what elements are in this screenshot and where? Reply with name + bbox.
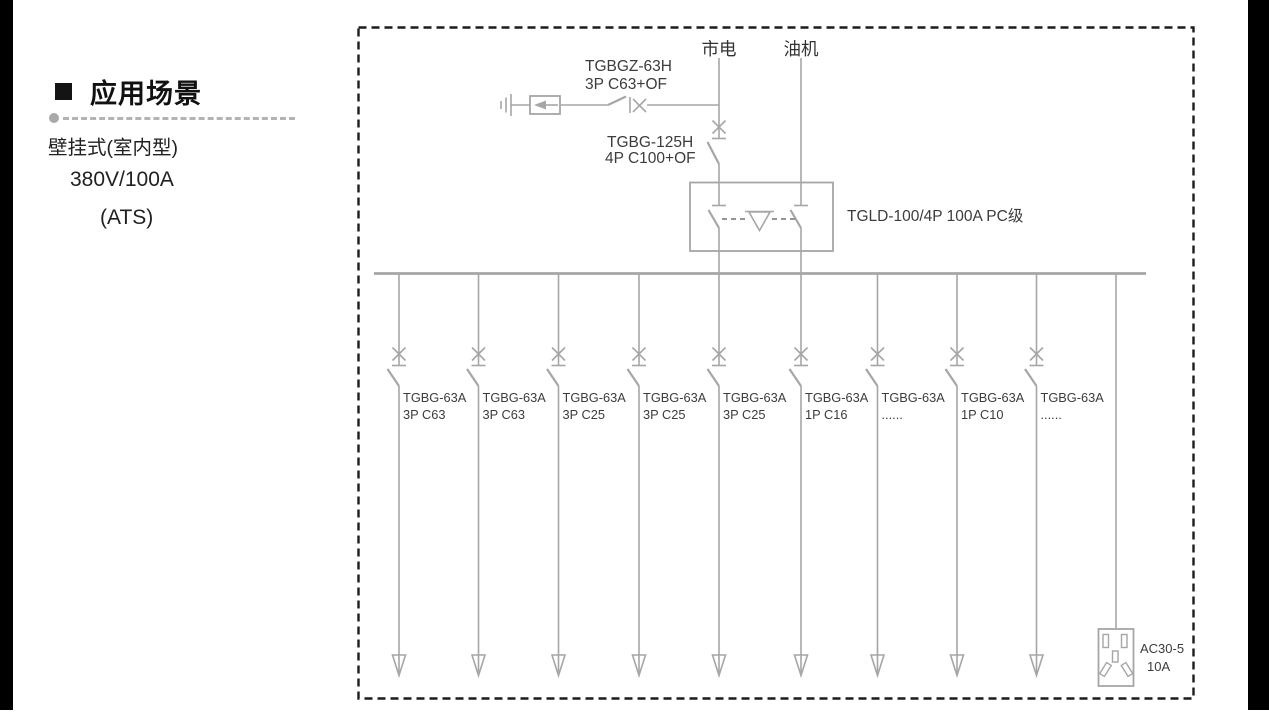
- feeder-branch: TGBG-63A 3P C25: [708, 274, 787, 676]
- breaker-blade-icon: [608, 97, 626, 106]
- breaker-blade-icon: [790, 369, 802, 386]
- main-breaker-model: TGBG-125H: [607, 134, 693, 151]
- single-line-diagram: 市电 油机 TGBGZ-63H 3P C63+OF TGBG-125H 4P C…: [0, 0, 1269, 721]
- branch-spec: 3P C25: [563, 407, 605, 422]
- breaker-x-icon: [633, 99, 646, 112]
- feeder-branch: TGBG-63A 3P C25: [628, 274, 707, 676]
- breaker-blade-icon: [628, 369, 640, 386]
- feeder-branch: TGBG-63A 3P C25: [547, 274, 626, 676]
- branch-model: TGBG-63A: [483, 390, 547, 405]
- socket-branch: [1099, 274, 1134, 686]
- socket-slot: [1113, 651, 1119, 662]
- branch-spec: 3P C25: [643, 407, 685, 422]
- branch-model: TGBG-63A: [805, 390, 869, 405]
- diagram-dashed-border: [359, 28, 1194, 699]
- branch-model: TGBG-63A: [961, 390, 1025, 405]
- generator-source-label: 油机: [784, 39, 819, 59]
- earth-ground-icon: [501, 94, 511, 116]
- branch-spec: 3P C63: [483, 407, 525, 422]
- branch-model: TGBG-63A: [563, 390, 627, 405]
- branch-model: TGBG-63A: [723, 390, 787, 405]
- branch-spec: ......: [1041, 407, 1062, 422]
- socket-model: AC30-5: [1140, 641, 1184, 656]
- interlock-triangle-icon: [749, 212, 770, 231]
- socket-slot: [1122, 635, 1128, 648]
- feeder-branch: TGBG-63A 3P C63: [467, 274, 546, 676]
- feeder-branch: TGBG-63A ......: [866, 274, 945, 676]
- socket-slot: [1121, 663, 1133, 677]
- socket-slot: [1103, 635, 1109, 648]
- branch-spec: 1P C16: [805, 407, 847, 422]
- socket-rating: 10A: [1147, 659, 1170, 674]
- branch-spec: ......: [882, 407, 903, 422]
- feeder-branch: TGBG-63A ......: [1025, 274, 1104, 676]
- breaker-blade-icon: [708, 369, 720, 386]
- branch-model: TGBG-63A: [882, 390, 946, 405]
- feeder-branch: TGBG-63A 3P C63: [388, 274, 467, 676]
- branch-spec: 3P C25: [723, 407, 765, 422]
- feeder-branch: TGBG-63A 1P C10: [946, 274, 1025, 676]
- spd-breaker-spec: 3P C63+OF: [585, 76, 667, 93]
- spd-arrow-icon: [534, 101, 546, 110]
- branch-model: TGBG-63A: [643, 390, 707, 405]
- main-breaker-spec: 4P C100+OF: [605, 150, 696, 167]
- ats-switch: [690, 183, 833, 274]
- breaker-blade-icon: [946, 369, 958, 386]
- feeder-branch: TGBG-63A 1P C16: [790, 274, 869, 676]
- breaker-blade-icon: [547, 369, 559, 386]
- breaker-blade-icon: [708, 142, 720, 164]
- spd-breaker-model: TGBGZ-63H: [585, 58, 672, 75]
- branch-model: TGBG-63A: [403, 390, 467, 405]
- branch-model: TGBG-63A: [1041, 390, 1105, 405]
- socket-icon: [1099, 629, 1134, 686]
- spd-branch: [501, 94, 719, 116]
- breaker-blade-icon: [388, 369, 400, 386]
- breaker-blade-icon: [467, 369, 479, 386]
- branch-spec: 1P C10: [961, 407, 1003, 422]
- mains-source-label: 市电: [702, 39, 737, 59]
- switch-blade-icon: [709, 210, 720, 228]
- breaker-blade-icon: [1025, 369, 1037, 386]
- breaker-blade-icon: [866, 369, 878, 386]
- branch-spec: 3P C63: [403, 407, 445, 422]
- ats-label: TGLD-100/4P 100A PC级: [847, 207, 1023, 225]
- socket-slot: [1100, 663, 1112, 677]
